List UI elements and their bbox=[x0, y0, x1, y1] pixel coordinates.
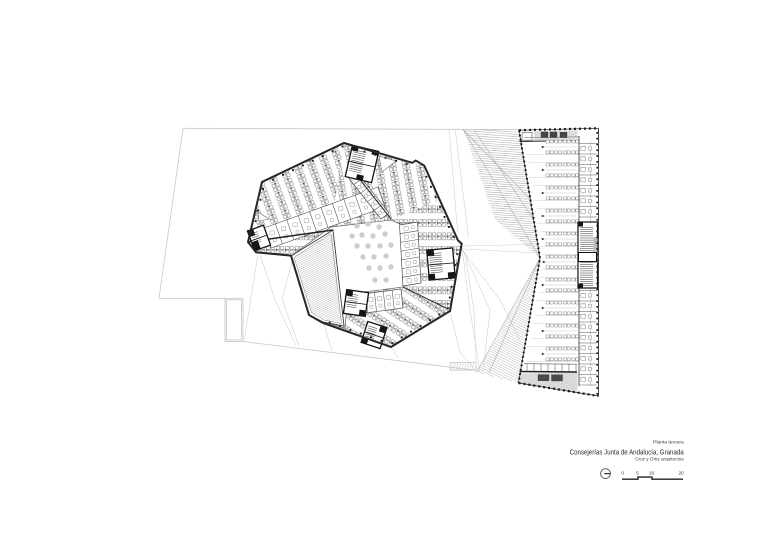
svg-text:Consejerías Junta de Andalucía: Consejerías Junta de Andalucía, Granada bbox=[570, 447, 685, 456]
svg-text:Planta tercera: Planta tercera bbox=[653, 439, 684, 445]
svg-text:5: 5 bbox=[636, 470, 639, 475]
svg-text:20: 20 bbox=[679, 470, 685, 475]
svg-text:Cruz y Ortiz arquitectos: Cruz y Ortiz arquitectos bbox=[635, 457, 684, 463]
svg-text:10: 10 bbox=[649, 470, 655, 475]
svg-text:0: 0 bbox=[621, 470, 624, 475]
